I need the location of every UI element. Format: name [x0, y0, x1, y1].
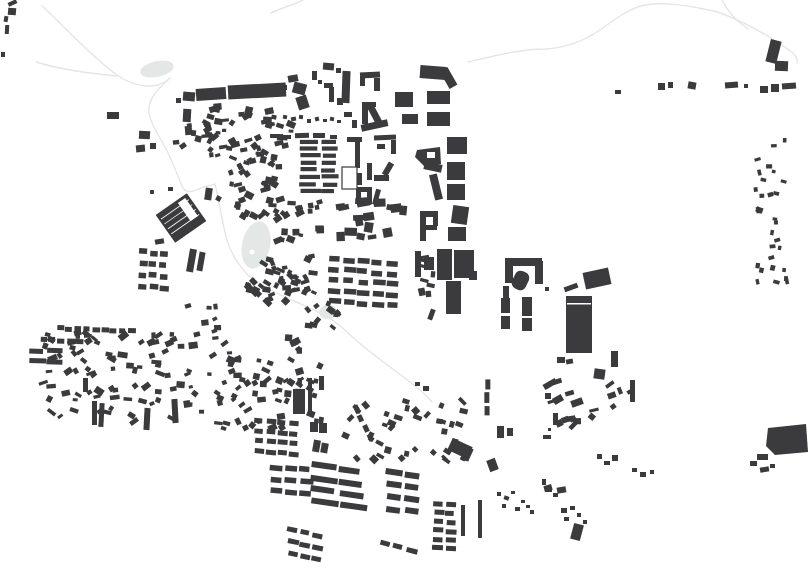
- building-footprint: [199, 410, 204, 414]
- building-footprint: [233, 182, 242, 187]
- building-footprint: [257, 396, 266, 402]
- rowhouse-footprint: [358, 280, 368, 286]
- building-footprint: [238, 401, 246, 408]
- building-footprint: [112, 388, 118, 393]
- building-footprint: [252, 390, 258, 396]
- river-widening: [139, 58, 176, 81]
- building-footprint: [267, 360, 274, 366]
- building-footprint: [542, 479, 546, 485]
- building-footprint: [360, 77, 365, 86]
- rowhouse-footprint: [372, 302, 385, 308]
- building-footprint: [329, 324, 336, 330]
- rowhouse-footprint: [357, 301, 368, 307]
- rowhouse-footprint: [392, 543, 402, 550]
- building-footprint: [415, 251, 421, 277]
- rowhouse-footprint: [57, 325, 64, 330]
- building-footprint: [8, 8, 17, 16]
- building-footprint: [274, 213, 279, 217]
- building-footprint: [313, 378, 318, 383]
- building-footprint: [565, 390, 575, 397]
- rowhouse-footprint: [288, 550, 298, 557]
- rowhouse-footprint: [387, 280, 399, 286]
- building-footprint: [427, 91, 450, 104]
- building-footprint: [313, 133, 325, 138]
- building-footprint: [318, 80, 322, 84]
- building-footprint: [196, 252, 205, 272]
- pond-island: [250, 250, 255, 255]
- rowhouse-footprint: [266, 429, 275, 435]
- building-footprint: [220, 340, 228, 348]
- building-footprint: [783, 138, 787, 143]
- building-footprint: [215, 195, 222, 202]
- rowhouse-footprint: [310, 485, 334, 494]
- rowhouse-footprint: [434, 509, 444, 515]
- building-footprint: [561, 508, 567, 513]
- building-footprint: [503, 495, 509, 500]
- rowhouse-footprint: [322, 174, 339, 178]
- rowhouse-footprint: [386, 480, 402, 488]
- rowhouse-footprint: [109, 328, 116, 333]
- building-footprint: [545, 287, 549, 291]
- building-footprint: [283, 397, 290, 404]
- rowhouse-footprint: [321, 168, 335, 172]
- rowhouse-footprint: [128, 328, 136, 333]
- building-footprint: [511, 491, 515, 494]
- building-footprint: [311, 393, 317, 399]
- building-footprint: [526, 505, 530, 508]
- rowhouse-footprint: [285, 489, 297, 496]
- building-footprint: [148, 352, 155, 359]
- building-footprint: [757, 169, 762, 175]
- rowhouse-footprint: [446, 502, 456, 508]
- rowhouse-footprint: [371, 270, 382, 276]
- building-footprint: [564, 283, 579, 292]
- rowhouse-footprint: [83, 326, 89, 331]
- rowhouse-footprint: [404, 472, 419, 480]
- building-footprint: [155, 370, 165, 377]
- rowhouse-footprint: [271, 477, 282, 483]
- building-footprint: [219, 145, 228, 150]
- building-footprint: [222, 118, 229, 122]
- building-footprint: [577, 513, 581, 517]
- building-footprint: [285, 334, 293, 341]
- building-footprint: [744, 84, 748, 88]
- building-footprint: [287, 356, 295, 363]
- rowhouse-footprint: [150, 284, 159, 290]
- building-footprint: [57, 413, 63, 419]
- pond-central: [237, 219, 274, 272]
- building-footprint: [553, 413, 558, 425]
- building-footprint: [295, 367, 305, 376]
- building-footprint: [138, 398, 147, 405]
- building-footprint: [243, 406, 252, 414]
- building-footprint: [183, 91, 196, 101]
- building-footprint: [347, 414, 355, 422]
- rowhouse-footprint: [299, 182, 316, 186]
- building-footprint: [402, 398, 410, 405]
- building-footprint: [307, 119, 311, 123]
- building-footprint: [193, 331, 200, 337]
- building-footprint: [770, 464, 775, 468]
- building-footprint: [312, 71, 317, 80]
- building-footprint: [566, 358, 574, 364]
- building-footprint: [447, 162, 465, 180]
- rowhouse-footprint: [102, 327, 110, 332]
- building-footprint: [281, 228, 288, 235]
- rowhouse-footprint: [338, 466, 360, 475]
- building-footprint: [356, 187, 372, 192]
- building-footprint: [69, 407, 79, 414]
- building-footprint: [497, 492, 501, 496]
- building-footprint: [501, 316, 510, 329]
- building-footprint: [425, 225, 437, 230]
- rowhouse-footprint: [119, 328, 125, 333]
- building-footprint: [5, 25, 9, 34]
- building-footprint: [123, 397, 132, 401]
- road-north-long: [468, 4, 797, 63]
- building-footprint: [168, 187, 173, 191]
- building-footprint: [557, 486, 567, 493]
- rowhouse-footprint: [300, 553, 311, 560]
- building-footprint: [295, 95, 309, 111]
- building-footprint: [448, 227, 466, 241]
- building-footprint: [105, 352, 113, 358]
- rowhouse-footprint: [289, 452, 299, 458]
- building-footprint: [530, 510, 534, 514]
- building-footprint: [773, 280, 780, 285]
- building-footprint: [176, 98, 181, 103]
- rowhouse-footprint: [447, 520, 456, 525]
- rowhouse-footprint: [386, 506, 401, 514]
- rowhouse-footprint: [159, 286, 169, 292]
- building-footprint: [264, 107, 274, 115]
- building-footprint: [446, 281, 461, 314]
- building-footprint: [179, 142, 187, 150]
- rowhouse-footprint: [289, 431, 298, 437]
- building-footprint: [228, 82, 287, 99]
- building-footprint: [772, 169, 776, 173]
- rowhouse-footprint: [433, 537, 443, 542]
- rowhouse-footprint: [300, 153, 320, 157]
- rowhouse-footprint: [321, 140, 336, 144]
- building-footprint: [330, 135, 337, 139]
- building-footprint: [427, 112, 450, 126]
- building-footprint: [782, 82, 796, 89]
- rowhouse-footprint: [387, 493, 401, 501]
- building-footprint: [469, 271, 477, 280]
- rowhouse-footprint: [485, 406, 490, 415]
- building-footprint: [291, 117, 297, 122]
- building-footprint: [593, 368, 605, 379]
- building-footprint: [314, 205, 319, 210]
- rowhouse-footprint: [373, 291, 384, 297]
- building-footprint: [83, 378, 88, 392]
- building-footprint: [277, 413, 286, 420]
- rowhouse-footprint: [329, 277, 339, 283]
- building-footprint: [264, 184, 271, 190]
- building-footprint: [271, 115, 277, 120]
- building-footprint: [337, 98, 343, 105]
- building-footprint: [234, 417, 241, 425]
- building-footprint: [293, 389, 305, 414]
- rowhouse-footprint: [48, 337, 55, 342]
- building-footprint: [315, 117, 320, 122]
- building-footprint: [84, 366, 91, 373]
- building-footprint: [312, 439, 321, 452]
- building-footprint: [240, 147, 248, 152]
- building-footprint: [612, 455, 618, 461]
- building-footprint: [382, 161, 394, 176]
- rowhouse-footprint: [29, 349, 43, 354]
- building-footprint: [286, 120, 297, 129]
- building-footprint: [459, 408, 468, 415]
- rowhouse-footprint: [405, 507, 419, 515]
- building-footprint: [275, 195, 285, 203]
- building-footprint: [548, 428, 551, 431]
- building-footprint: [289, 129, 294, 132]
- building-footprint: [214, 118, 223, 126]
- building-footprint: [725, 81, 738, 88]
- rowhouse-footprint: [270, 465, 283, 472]
- building-footprint: [760, 177, 766, 182]
- rowhouse-footprint: [255, 438, 263, 444]
- building-footprint: [226, 355, 237, 365]
- rowhouse-footprint: [278, 450, 287, 456]
- building-footprint: [447, 137, 467, 154]
- building-footprint: [449, 421, 455, 428]
- building-footprint: [228, 169, 234, 175]
- building-footprint: [522, 318, 532, 331]
- building-footprint: [374, 78, 380, 91]
- building-footprint: [283, 135, 291, 139]
- building-footprint: [170, 386, 177, 392]
- building-footprint: [545, 393, 551, 399]
- rowhouse-footprint: [287, 538, 299, 545]
- building-footprint: [73, 398, 78, 402]
- rowhouse-footprint: [380, 540, 391, 547]
- building-footprint: [344, 112, 352, 117]
- figure-ground-map: [0, 0, 810, 570]
- building-footprint: [607, 391, 617, 399]
- building-footprint: [404, 405, 410, 412]
- building-footprint: [228, 119, 235, 126]
- building-footprint: [305, 323, 313, 329]
- rowhouse-footprint: [266, 450, 277, 456]
- rowhouse-footprint: [150, 251, 158, 257]
- rowhouse-footprint: [148, 261, 156, 267]
- rowhouse-footprint: [140, 260, 148, 266]
- building-footprint: [297, 378, 302, 384]
- rowhouse-footprint: [339, 490, 363, 499]
- building-footprint: [564, 517, 569, 521]
- building-footprint: [214, 325, 221, 330]
- building-footprint: [209, 352, 218, 360]
- rowhouse-footprint: [311, 461, 337, 470]
- building-footprint: [755, 263, 760, 269]
- rowhouse-footprint: [254, 418, 262, 424]
- building-footprint: [170, 332, 175, 337]
- rowhouse-footprint: [301, 189, 321, 193]
- building-footprint: [238, 112, 244, 117]
- rowhouse-footprint: [289, 440, 297, 446]
- building-footprint: [437, 249, 452, 280]
- rowhouse-footprint: [357, 414, 364, 422]
- building-footprint: [292, 82, 307, 96]
- building-footprint: [282, 265, 288, 270]
- building-footprint: [235, 385, 242, 391]
- building-footprint: [251, 379, 258, 386]
- building-footprint: [69, 345, 76, 351]
- building-footprint: [458, 397, 467, 406]
- building-footprint: [256, 151, 264, 157]
- building-footprint: [367, 163, 372, 180]
- building-footprint: [212, 316, 218, 321]
- building-footprint: [270, 154, 277, 161]
- building-footprint: [141, 381, 152, 391]
- building-footprint: [760, 466, 770, 472]
- rowhouse-footprint: [323, 154, 336, 158]
- building-footprint: [583, 267, 612, 289]
- courtyard-building: [156, 193, 207, 243]
- building-footprint: [281, 85, 287, 90]
- building-footprint: [553, 493, 558, 497]
- building-footprint: [375, 440, 384, 447]
- building-footprint: [605, 380, 615, 388]
- building-footprint: [337, 120, 341, 123]
- building-footprint: [72, 367, 79, 374]
- building-footprint: [214, 421, 223, 425]
- building-footprint: [143, 408, 150, 430]
- building-footprint: [336, 232, 345, 241]
- building-footprint: [543, 435, 551, 439]
- rowhouse-footprint: [433, 527, 443, 533]
- building-footprint: [319, 423, 327, 433]
- rowhouse-footprint: [344, 299, 355, 305]
- rowhouse-footprint: [278, 430, 288, 436]
- rowhouse-footprint: [406, 547, 418, 555]
- building-footprint: [640, 472, 646, 477]
- rowhouse-footprint: [148, 272, 156, 278]
- building-footprint: [329, 87, 334, 102]
- building-footprint: [213, 103, 222, 110]
- building-footprint: [756, 207, 760, 211]
- building-footprint: [220, 426, 226, 431]
- building-footprint: [770, 265, 776, 271]
- building-footprint: [204, 188, 213, 201]
- building-footprint: [341, 432, 350, 440]
- rowhouse-footprint: [434, 518, 443, 523]
- rowhouse-footprint: [300, 529, 309, 536]
- building-footprint: [316, 226, 324, 233]
- building-footprint: [292, 229, 299, 236]
- building-footprint: [760, 86, 768, 93]
- building-footprint: [441, 428, 448, 435]
- industrial-hall: [566, 296, 592, 353]
- rowhouse-footprint: [277, 439, 287, 445]
- building-footprint: [404, 451, 410, 457]
- building-footprint: [589, 407, 599, 412]
- building-footprint: [323, 63, 335, 71]
- building-footprint: [139, 131, 150, 140]
- building-footprint: [363, 212, 375, 222]
- building-footprint: [275, 398, 282, 403]
- rowhouse-footprint: [387, 272, 397, 278]
- building-footprint: [304, 306, 311, 314]
- building-footprint: [320, 442, 329, 453]
- building-footprint: [429, 173, 443, 200]
- building-footprint: [273, 282, 279, 289]
- building-footprint: [276, 164, 283, 170]
- building-footprint: [447, 184, 465, 200]
- building-footprint: [84, 334, 92, 338]
- building-footprint: [415, 382, 420, 386]
- building-footprint: [501, 298, 510, 313]
- building-footprint: [256, 358, 261, 362]
- building-footprint: [352, 120, 357, 128]
- building-footprint: [149, 401, 155, 406]
- building-footprint: [261, 366, 271, 374]
- rowhouse-footprint: [338, 479, 362, 488]
- rowhouse-footprint: [344, 288, 357, 294]
- building-footprint: [222, 420, 230, 426]
- building-footprint: [774, 238, 781, 243]
- building-footprint: [368, 234, 377, 239]
- trapezoid-courtyard: [427, 152, 435, 158]
- building-footprint: [570, 506, 575, 510]
- building-footprint: [374, 134, 396, 140]
- building-footprint: [215, 153, 221, 158]
- rowhouse-footprint: [386, 292, 398, 298]
- rowhouse-footprint: [329, 298, 342, 304]
- building-footprint: [384, 446, 392, 454]
- rowhouse-footprint: [254, 428, 263, 434]
- building-footprint: [222, 129, 226, 132]
- rowhouse-footprint: [446, 537, 456, 543]
- rowhouse-footprint: [329, 256, 340, 262]
- rowhouse-footprint: [301, 167, 317, 171]
- building-footprint: [316, 199, 323, 205]
- building-footprint: [486, 458, 499, 472]
- building-footprint: [399, 205, 407, 215]
- building-footprint: [308, 270, 317, 276]
- building-footprint: [382, 422, 388, 427]
- building-footprint: [227, 351, 232, 354]
- building-footprint: [254, 134, 262, 142]
- building-footprint: [353, 215, 364, 221]
- building-footprint: [310, 422, 318, 432]
- rowhouse-footprint: [311, 497, 339, 507]
- building-footprint: [259, 156, 267, 164]
- rowhouse-footprint: [446, 529, 457, 535]
- building-footprint: [455, 421, 464, 428]
- rowhouse-footprint: [299, 466, 310, 472]
- rowhouse-footprint: [300, 140, 318, 144]
- building-footprint: [597, 454, 602, 459]
- building-footprint: [336, 68, 341, 73]
- building-footprint: [185, 402, 193, 407]
- building-footprint: [650, 470, 654, 474]
- building-footprint: [542, 378, 557, 390]
- building-footprint: [151, 332, 155, 338]
- building-footprint: [502, 504, 506, 508]
- building-footprint: [766, 164, 772, 168]
- building-footprint: [427, 308, 435, 320]
- rowhouse-footprint: [358, 258, 370, 264]
- building-footprint: [438, 402, 444, 409]
- building-footprint: [687, 81, 696, 89]
- building-footprint: [297, 348, 302, 354]
- rowhouse-footprint: [160, 251, 168, 257]
